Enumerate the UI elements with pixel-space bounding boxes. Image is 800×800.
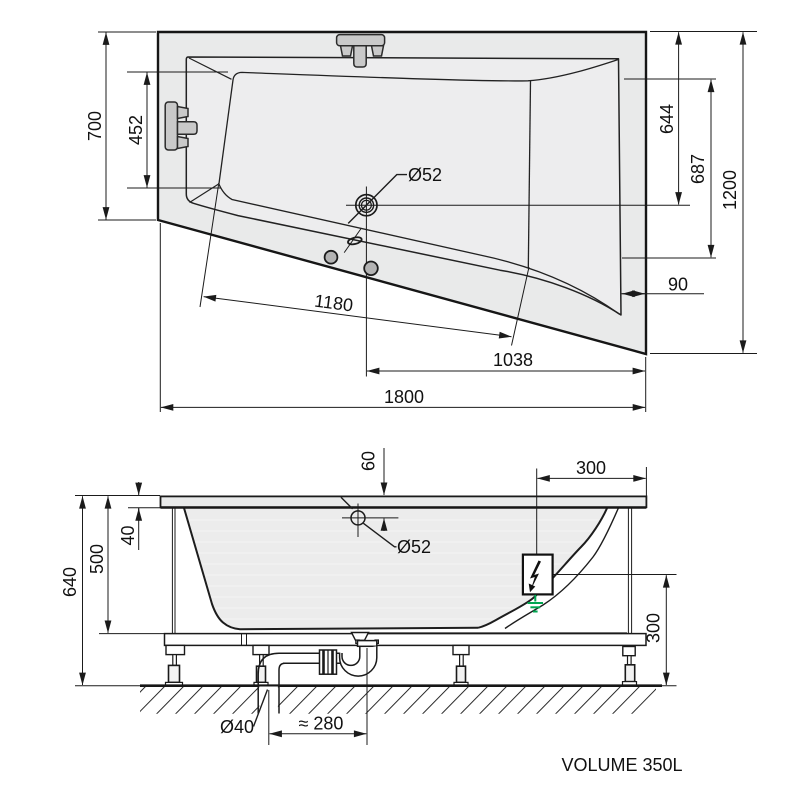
svg-text:Ø40: Ø40 — [220, 717, 254, 737]
svg-text:1038: 1038 — [493, 350, 533, 370]
svg-text:300: 300 — [644, 613, 664, 643]
svg-text:644: 644 — [657, 104, 677, 134]
svg-text:1800: 1800 — [384, 387, 424, 407]
svg-text:60: 60 — [359, 451, 379, 471]
svg-text:VOLUME 350L: VOLUME 350L — [561, 755, 682, 775]
svg-text:687: 687 — [688, 154, 708, 184]
svg-text:300: 300 — [576, 458, 606, 478]
svg-text:Ø52: Ø52 — [397, 537, 431, 557]
svg-text:Ø52: Ø52 — [408, 165, 442, 185]
svg-text:90: 90 — [668, 275, 688, 295]
svg-text:40: 40 — [118, 525, 138, 545]
svg-text:640: 640 — [60, 567, 80, 597]
svg-text:≈ 280: ≈ 280 — [299, 714, 344, 734]
svg-text:700: 700 — [85, 111, 105, 141]
svg-text:452: 452 — [126, 115, 146, 145]
svg-text:1200: 1200 — [720, 170, 740, 210]
svg-text:500: 500 — [87, 544, 107, 574]
